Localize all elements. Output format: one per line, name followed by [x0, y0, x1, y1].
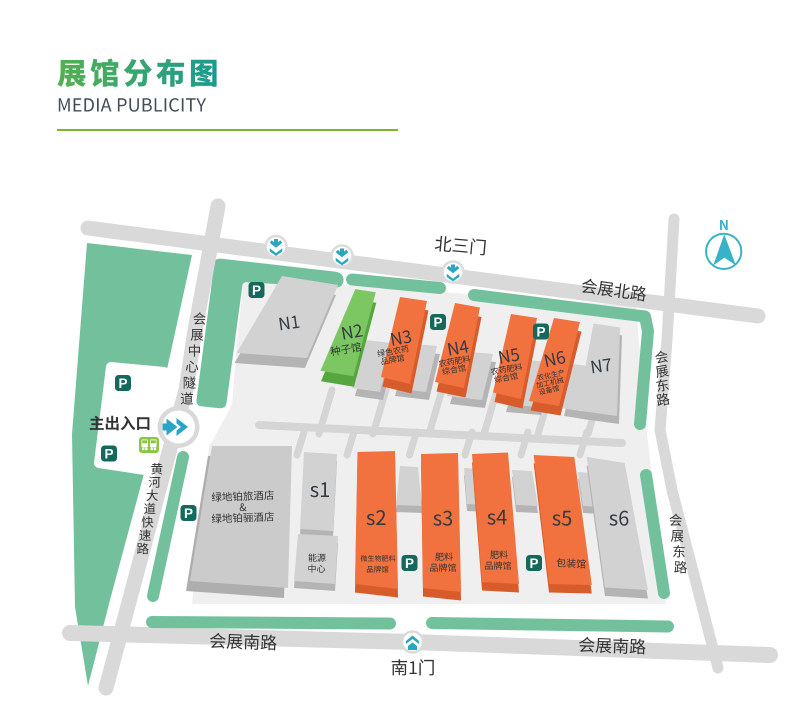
svg-text:P: P	[405, 556, 414, 571]
svg-text:P: P	[252, 283, 261, 298]
svg-text:P: P	[529, 556, 538, 571]
svg-text:P: P	[104, 447, 113, 462]
svg-text:P: P	[433, 315, 442, 330]
svg-text:P: P	[184, 506, 193, 521]
svg-text:P: P	[536, 325, 545, 340]
svg-text:P: P	[118, 376, 127, 391]
